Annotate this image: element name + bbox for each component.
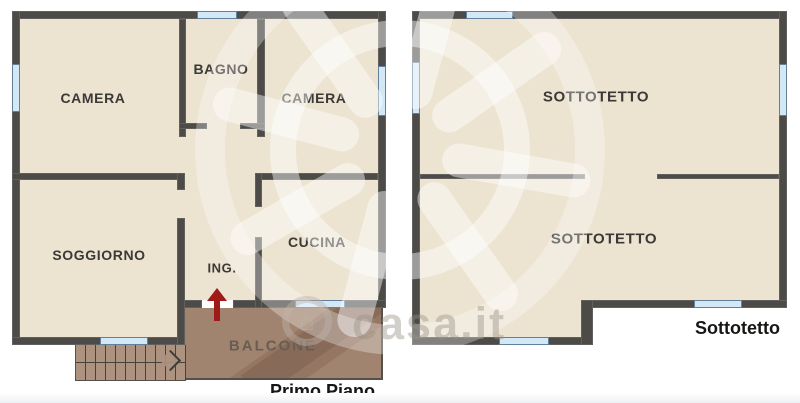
floor-area bbox=[420, 19, 779, 300]
wall-segment bbox=[581, 300, 593, 345]
wall-segment bbox=[179, 123, 207, 129]
bottom-fade bbox=[0, 393, 800, 403]
window bbox=[466, 11, 513, 19]
room-label-ing: ING. bbox=[207, 261, 236, 276]
room-label-soggiorno: SOGGIORNO bbox=[52, 247, 145, 263]
floor-area bbox=[20, 300, 177, 337]
arrow-stem bbox=[214, 300, 220, 321]
wall-segment bbox=[779, 11, 787, 308]
staircase bbox=[75, 345, 186, 381]
wall-segment bbox=[378, 11, 386, 308]
room-label-bagno: BAGNO bbox=[193, 61, 248, 77]
wall-segment bbox=[12, 173, 183, 180]
stair-direction-arrow-icon bbox=[160, 350, 181, 371]
wall-segment bbox=[240, 123, 265, 129]
room-label-cucina: CUCINA bbox=[288, 234, 346, 250]
wall-segment bbox=[255, 173, 378, 180]
floor-area bbox=[420, 300, 581, 337]
window bbox=[295, 300, 345, 308]
wall-segment bbox=[257, 19, 265, 137]
wall-segment bbox=[420, 174, 585, 179]
window bbox=[100, 337, 148, 345]
wall-segment bbox=[657, 174, 779, 179]
wall-segment bbox=[581, 300, 787, 308]
room-label-camera-1: CAMERA bbox=[60, 90, 125, 106]
wall-segment bbox=[255, 173, 262, 207]
floor-label-sottotetto: Sottotetto bbox=[695, 318, 780, 339]
room-label-balcone: BALCONE bbox=[229, 338, 317, 355]
window bbox=[499, 337, 549, 345]
room-label-camera-2: CAMERA bbox=[281, 90, 346, 106]
room-label-sottotetto-bottom: SOTTOTETTO bbox=[551, 231, 657, 248]
window bbox=[197, 11, 237, 19]
wall-segment bbox=[255, 237, 262, 308]
wall-segment bbox=[12, 337, 185, 345]
window bbox=[378, 66, 386, 116]
window bbox=[412, 62, 420, 114]
window bbox=[779, 64, 787, 116]
wall-segment bbox=[177, 173, 185, 190]
wall-segment bbox=[177, 218, 185, 345]
window bbox=[694, 300, 742, 308]
floorplan-image: CAMERA BAGNO CAMERA SOGGIORNO ING. CUCIN… bbox=[0, 0, 800, 403]
room-label-sottotetto-top: SOTTOTETTO bbox=[543, 89, 649, 106]
wall-segment bbox=[179, 19, 186, 137]
entrance-arrow-icon bbox=[207, 288, 227, 321]
window bbox=[12, 64, 20, 112]
